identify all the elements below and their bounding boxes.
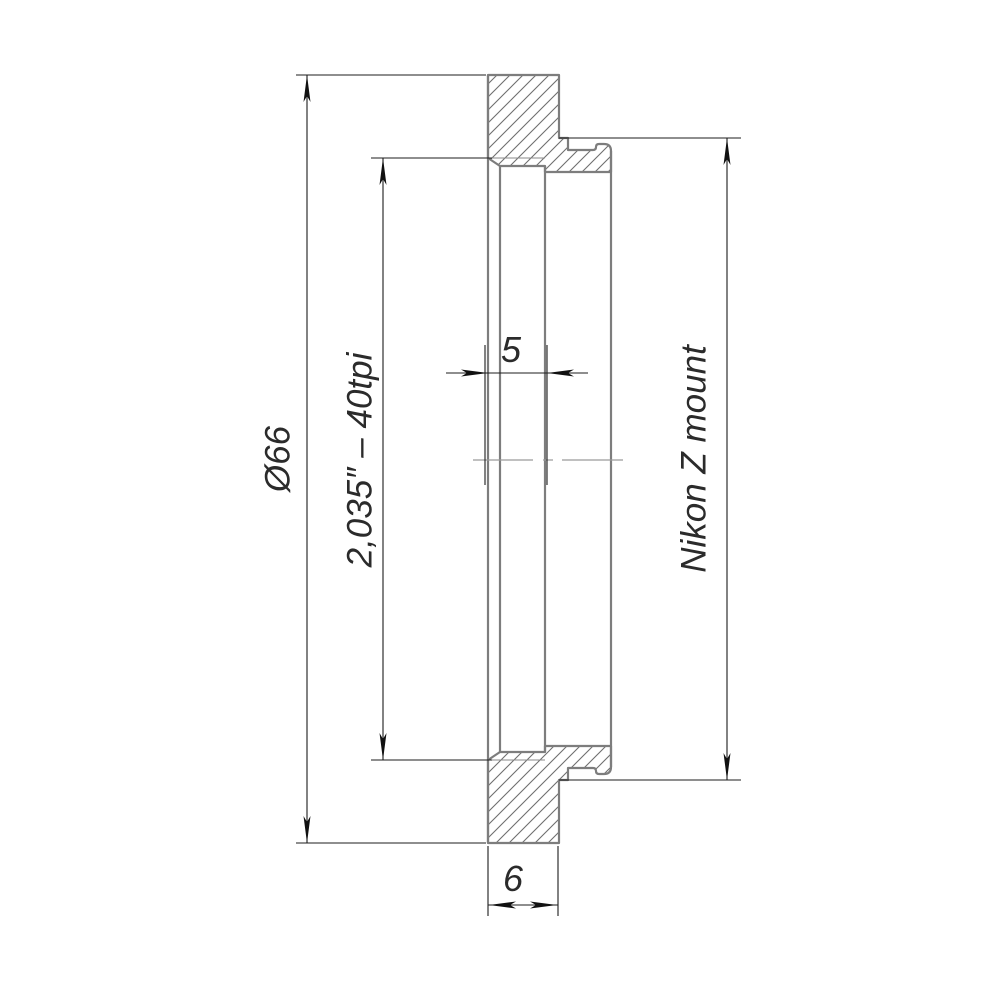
- dim-label-outer-diameter: Ø66: [258, 425, 297, 493]
- dim-label-flange-thickness: 6: [503, 858, 524, 899]
- dim-label-thread-length: 5: [501, 329, 522, 370]
- part-section: [473, 75, 623, 843]
- dimension-outer-diameter: [296, 75, 486, 843]
- drawing-canvas: Ø66 2,035″ – 40tpi 5 Nikon Z mount 6: [0, 0, 1000, 1000]
- technical-drawing: Ø66 2,035″ – 40tpi 5 Nikon Z mount 6: [0, 0, 1000, 1000]
- dim-label-thread-spec: 2,035″ – 40tpi: [340, 351, 379, 568]
- dim-label-mount: Nikon Z mount: [674, 344, 713, 573]
- dimension-mount: [559, 138, 741, 780]
- dimension-thread-spec: [371, 158, 492, 760]
